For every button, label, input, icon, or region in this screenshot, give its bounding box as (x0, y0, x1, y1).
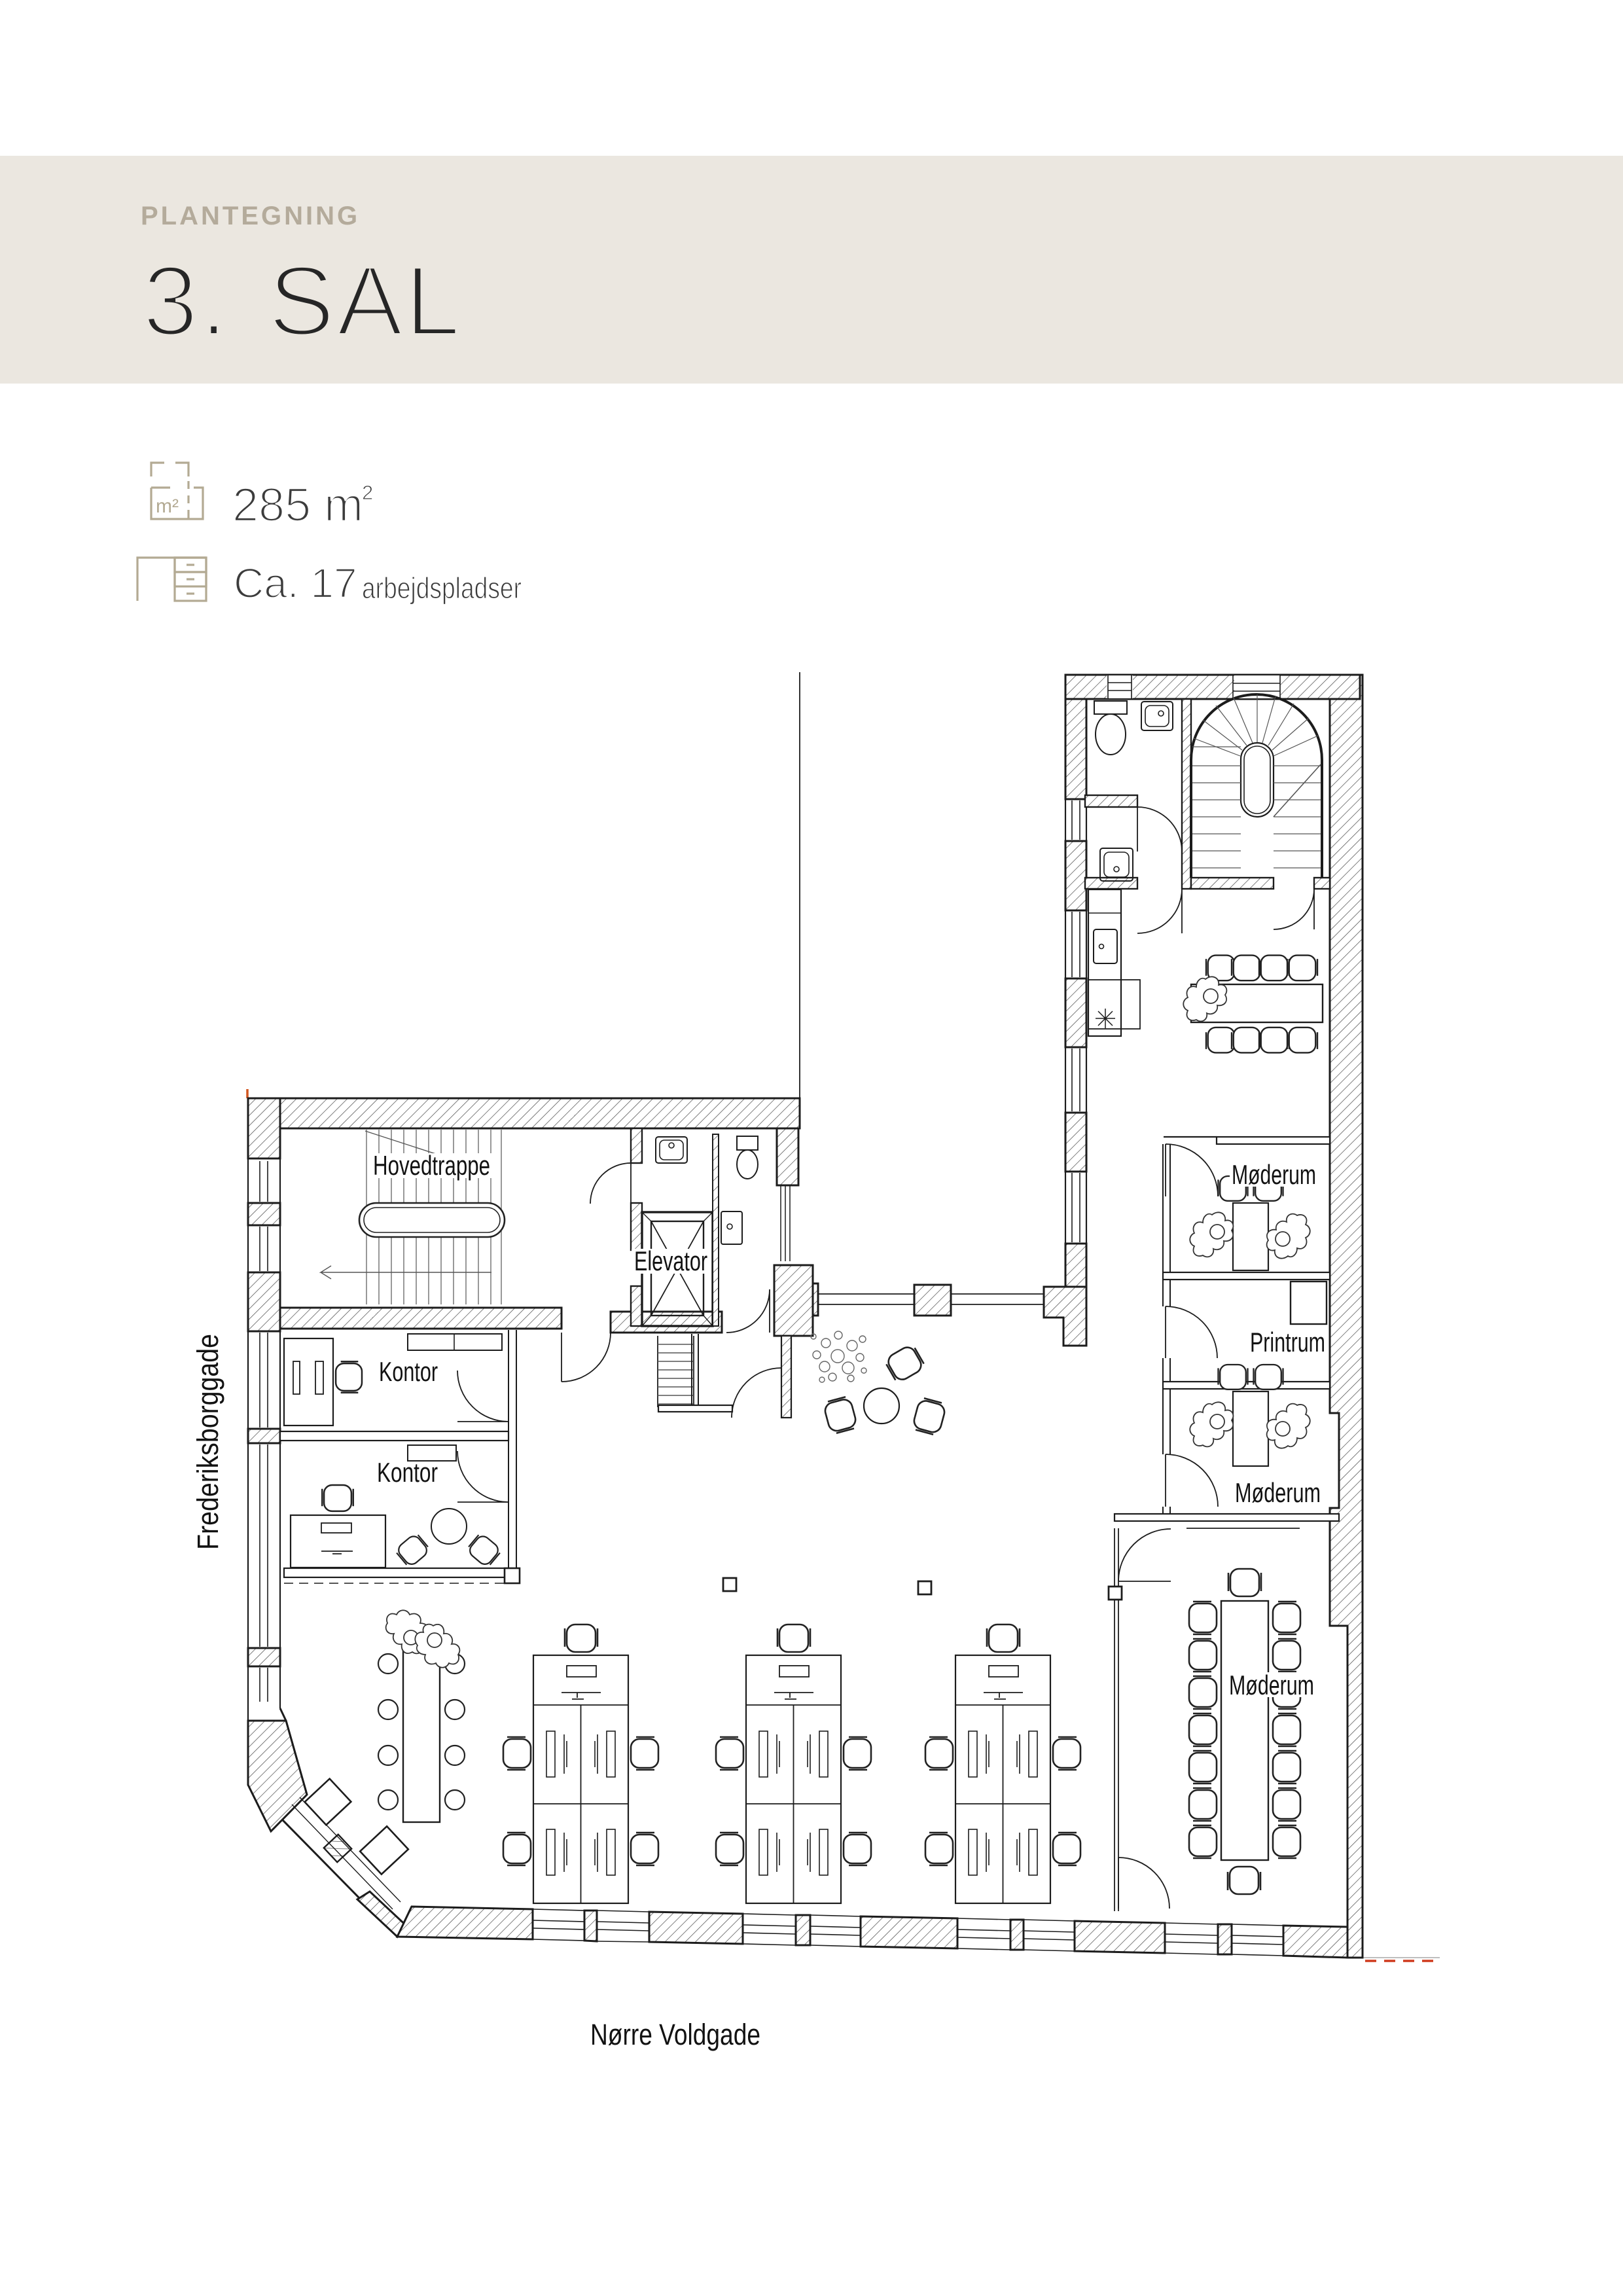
svg-text:Møderum: Møderum (1232, 1159, 1316, 1190)
svg-text:Hovedtrappe: Hovedtrappe (373, 1150, 490, 1181)
svg-text:Møderum: Møderum (1235, 1477, 1321, 1508)
svg-text:Kontor: Kontor (377, 1457, 438, 1488)
svg-text:Kontor: Kontor (379, 1356, 438, 1387)
svg-text:Elevator: Elevator (634, 1246, 707, 1276)
svg-text:Møderum: Møderum (1229, 1670, 1314, 1700)
svg-text:Printrum: Printrum (1250, 1327, 1325, 1357)
svg-text:Nørre Voldgade: Nørre Voldgade (590, 2018, 760, 2051)
svg-text:Frederiksborggade: Frederiksborggade (191, 1334, 224, 1550)
